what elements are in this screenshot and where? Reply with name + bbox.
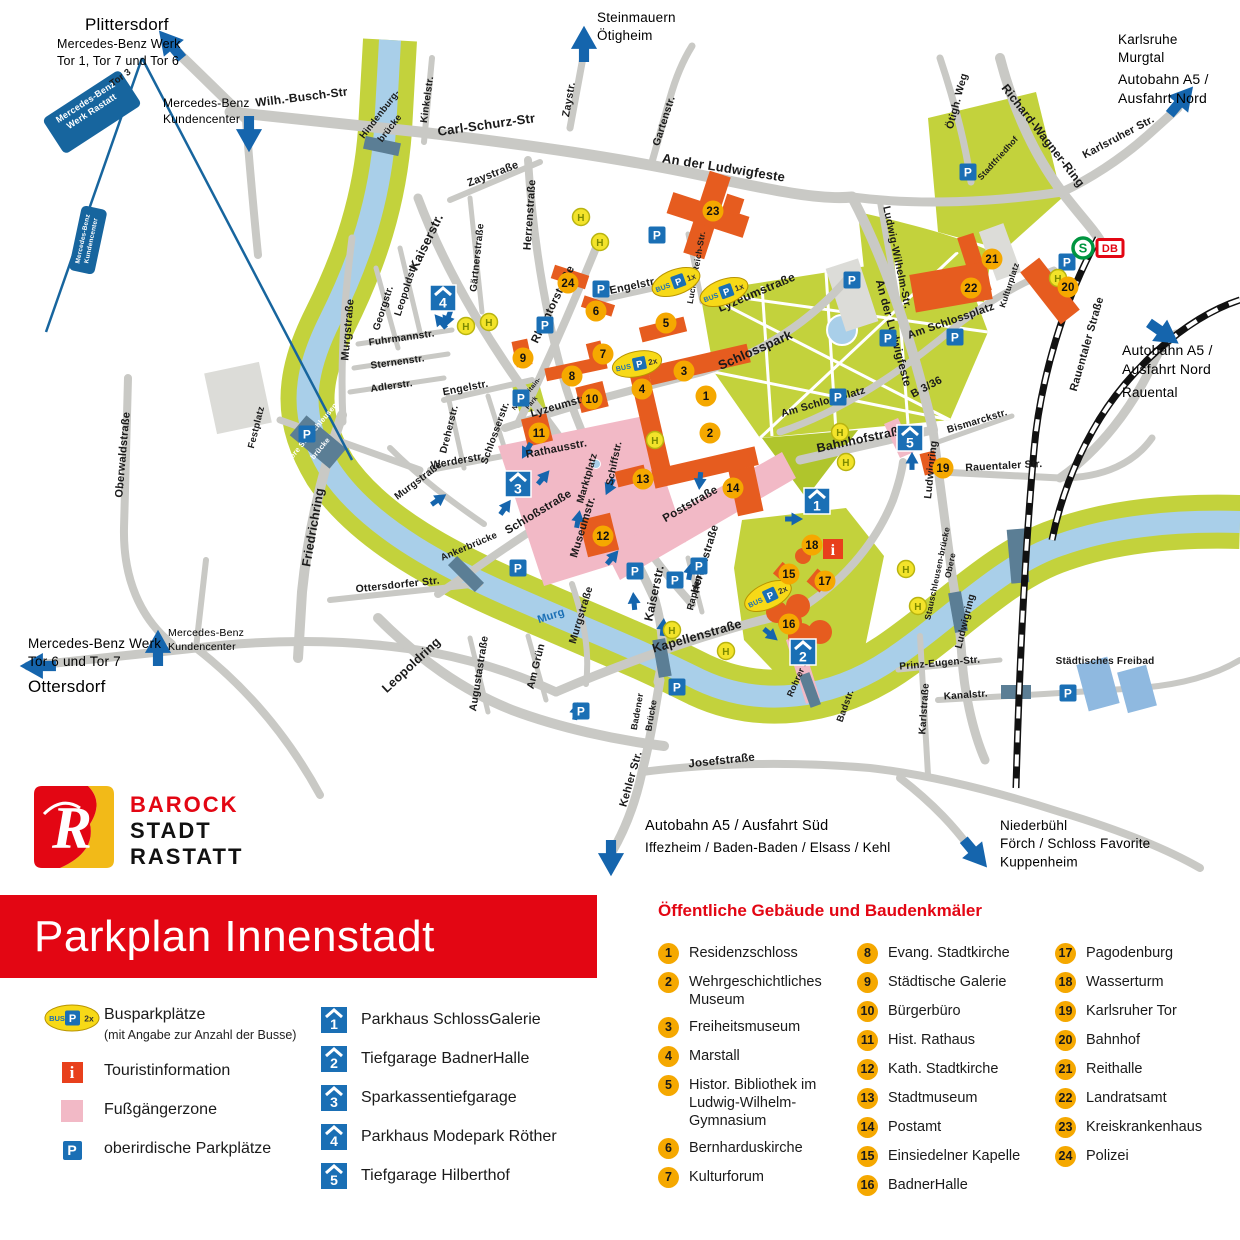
svg-text:P: P: [597, 283, 605, 297]
svg-text:H: H: [462, 322, 469, 333]
svg-text:Wilh.-Busch-Str: Wilh.-Busch-Str: [255, 84, 349, 109]
poi-list-item-15: 15Einsiedelner Kapelle: [857, 1146, 1055, 1167]
bus-stop-icon: H: [592, 234, 609, 251]
svg-text:Kundencenter: Kundencenter: [163, 112, 240, 126]
parking-icon: P: [1060, 685, 1077, 702]
parkhaus-label: Sparkassentiefgarage: [361, 1089, 517, 1107]
poi-number-badge: 15: [857, 1146, 878, 1167]
svg-text:P: P: [884, 332, 892, 346]
svg-text:1: 1: [813, 498, 821, 514]
poi-list-item-21: 21Reithalle: [1055, 1059, 1228, 1080]
svg-text:Steinmauern: Steinmauern: [597, 10, 676, 25]
svg-text:Plittersdorf: Plittersdorf: [85, 15, 169, 34]
parkhaus-label: Parkhaus SchlossGalerie: [361, 1011, 541, 1029]
svg-text:H: H: [902, 565, 909, 576]
bus-stop-icon: H: [458, 318, 475, 335]
svg-text:P: P: [1064, 687, 1072, 701]
parking-icon: P: [1059, 254, 1076, 271]
poi-marker-8: 8: [562, 366, 583, 387]
poi-marker-10: 10: [582, 389, 603, 410]
poi-list-item-18: 18Wasserturm: [1055, 972, 1228, 993]
svg-text:Mercedes-Benz: Mercedes-Benz: [168, 627, 244, 639]
poi-number-badge: 7: [658, 1167, 679, 1188]
svg-text:2x: 2x: [84, 1014, 94, 1024]
svg-text:P: P: [673, 681, 681, 695]
svg-text:P: P: [653, 229, 661, 243]
svg-text:P: P: [577, 705, 585, 719]
poi-number-badge: 22: [1055, 1088, 1076, 1109]
parking-icon: P: [510, 560, 527, 577]
bus-stop-icon: H: [910, 598, 927, 615]
poi-marker-3: 3: [674, 361, 695, 382]
poi-label: Städtische Galerie: [888, 972, 1006, 991]
poi-number-badge: 9: [857, 972, 878, 993]
svg-text:H: H: [842, 458, 849, 469]
svg-text:3: 3: [681, 366, 688, 378]
svg-text:Carl-Schurz-Str: Carl-Schurz-Str: [437, 110, 536, 139]
svg-text:8: 8: [569, 371, 576, 383]
svg-text:16: 16: [782, 619, 795, 631]
poi-marker-5: 5: [656, 313, 677, 334]
svg-text:10: 10: [585, 394, 598, 406]
svg-text:H: H: [668, 626, 675, 637]
legend-label: oberirdische Parkplätze: [104, 1139, 271, 1159]
poi-label: Pagodenburg: [1086, 943, 1173, 962]
poi-label: Landratsamt: [1086, 1088, 1167, 1107]
bus-stop-icon: H: [838, 454, 855, 471]
legend-item-pink-square: Fußgängerzone: [40, 1099, 320, 1123]
svg-text:P: P: [303, 428, 311, 442]
poi-number-badge: 16: [857, 1175, 878, 1196]
svg-text:H: H: [722, 647, 729, 658]
bus-stop-icon: H: [898, 561, 915, 578]
svg-text:Rauental: Rauental: [1122, 385, 1178, 400]
svg-text:2: 2: [707, 428, 714, 440]
svg-text:Autobahn A5 / Ausfahrt Süd: Autobahn A5 / Ausfahrt Süd: [645, 818, 828, 834]
parking-icon: P: [649, 227, 666, 244]
poi-label: Bahnhof: [1086, 1030, 1140, 1049]
poi-list-item-7: 7Kulturforum: [658, 1167, 857, 1188]
public-buildings-section: Öffentliche Gebäude und Baudenkmäler 1Re…: [658, 901, 1228, 1204]
svg-text:i: i: [831, 542, 836, 559]
poi-marker-24: 24: [558, 273, 579, 294]
svg-text:24: 24: [561, 278, 575, 290]
svg-text:BUS: BUS: [49, 1014, 65, 1023]
svg-text:P: P: [541, 319, 549, 333]
legend-item-p-square: Poberirdische Parkplätze: [40, 1138, 320, 1162]
poi-list-item-5: 5Histor. Bibliothek im Ludwig-Wilhelm-Gy…: [658, 1075, 857, 1130]
poi-columns: 1Residenzschloss2Wehrgeschichtliches Mus…: [658, 943, 1228, 1204]
poi-list-item-22: 22Landratsamt: [1055, 1088, 1228, 1109]
poi-marker-15: 15: [779, 564, 800, 585]
svg-text:4: 4: [639, 384, 646, 396]
city-logo: R BAROCK STADT RASTATT: [34, 786, 243, 870]
info-square: i: [40, 1060, 104, 1084]
svg-text:2: 2: [799, 649, 807, 665]
poi-label: Postamt: [888, 1117, 941, 1136]
bus-stop-icon: H: [664, 622, 681, 639]
poi-number-badge: 23: [1055, 1117, 1076, 1138]
parkhaus-list-item-5: 5Tiefgarage Hilberthof: [320, 1162, 580, 1190]
svg-text:2: 2: [330, 1055, 338, 1071]
poi-marker-6: 6: [586, 301, 607, 322]
parkhaus-icon: 3: [320, 1084, 348, 1112]
svg-text:Karlstraße: Karlstraße: [917, 683, 932, 735]
poi-list-item-9: 9Städtische Galerie: [857, 972, 1055, 993]
poi-label: Karlsruher Tor: [1086, 1001, 1177, 1020]
poi-marker-1: 1: [696, 386, 717, 407]
svg-text:Kinkelstr.: Kinkelstr.: [419, 76, 436, 124]
parking-icon: P: [960, 164, 977, 181]
page-title: Parkplan Innenstadt: [34, 912, 435, 962]
poi-marker-13: 13: [633, 469, 654, 490]
svg-text:P: P: [517, 392, 525, 406]
svg-text:19: 19: [936, 463, 949, 475]
map-legend: BUSP2xBusparkplätze(mit Angabe zur Anzah…: [40, 1004, 320, 1177]
poi-list-item-17: 17Pagodenburg: [1055, 943, 1228, 964]
poi-marker-20: 20: [1058, 277, 1079, 298]
svg-text:Tor 1, Tor 7 und Tor 6: Tor 1, Tor 7 und Tor 6: [57, 54, 179, 68]
poi-list-item-3: 3Freiheitsmuseum: [658, 1017, 857, 1038]
tourist-info-icon: i: [823, 539, 843, 559]
svg-text:22: 22: [964, 283, 977, 295]
svg-text:P: P: [69, 1013, 76, 1025]
svg-text:1: 1: [703, 391, 710, 403]
parking-icon: P: [299, 426, 316, 443]
bus-stop-icon: H: [647, 432, 664, 449]
poi-label: Evang. Stadtkirche: [888, 943, 1010, 962]
poi-label: Einsiedelner Kapelle: [888, 1146, 1020, 1165]
poi-label: Freiheitsmuseum: [689, 1017, 800, 1036]
svg-text:7: 7: [600, 349, 607, 361]
poi-column-1: 1Residenzschloss2Wehrgeschichtliches Mus…: [658, 943, 857, 1204]
parkhaus-marker-1: 1: [804, 488, 830, 514]
poi-marker-11: 11: [529, 423, 550, 444]
poi-marker-14: 14: [723, 478, 744, 499]
svg-text:17: 17: [818, 576, 831, 588]
poi-marker-12: 12: [593, 526, 614, 547]
bus-stop-icon: H: [832, 424, 849, 441]
svg-text:Gärtnerstraße: Gärtnerstraße: [468, 223, 486, 293]
poi-marker-18: 18: [802, 535, 823, 556]
svg-text:Niederbühl: Niederbühl: [1000, 818, 1067, 833]
city-map-svg: Mercedes-BenzWerk RastattMercedes-BenzKu…: [0, 0, 1240, 885]
svg-text:Tor 6 und Tor 7: Tor 6 und Tor 7: [28, 654, 121, 669]
parkhaus-marker-4: 4: [430, 285, 456, 311]
s-bahn-icon: S: [1073, 238, 1093, 258]
svg-text:Mercedes-Benz Werk: Mercedes-Benz Werk: [28, 636, 161, 651]
city-map: Mercedes-BenzWerk RastattMercedes-BenzKu…: [0, 0, 1240, 885]
poi-marker-21: 21: [982, 249, 1003, 270]
svg-text:Ausfahrt Nord: Ausfahrt Nord: [1118, 90, 1207, 106]
poi-number-badge: 13: [857, 1088, 878, 1109]
svg-text:DB: DB: [1102, 243, 1118, 255]
svg-text:Gartenstr.: Gartenstr.: [650, 95, 677, 148]
parkhaus-list-item-1: 1Parkhaus SchlossGalerie: [320, 1006, 580, 1034]
mercedes-box: Mercedes-BenzWerk Rastatt: [42, 69, 142, 154]
poi-list-item-16: 16BadnerHalle: [857, 1175, 1055, 1196]
svg-text:P: P: [848, 274, 856, 288]
poi-number-badge: 17: [1055, 943, 1076, 964]
poi-marker-7: 7: [593, 344, 614, 365]
svg-text:Badener: Badener: [629, 692, 645, 731]
poi-list-item-19: 19Karlsruher Tor: [1055, 1001, 1228, 1022]
svg-text:3: 3: [330, 1094, 338, 1110]
legend-label: Fußgängerzone: [104, 1100, 217, 1120]
svg-text:5: 5: [663, 318, 670, 330]
parking-icon: P: [573, 703, 590, 720]
svg-text:P: P: [964, 166, 972, 180]
logo-line2: STADT: [130, 818, 243, 844]
parkhaus-list-item-2: 2Tiefgarage BadnerHalle: [320, 1045, 580, 1073]
svg-text:S: S: [1079, 241, 1088, 256]
poi-label: Bernharduskirche: [689, 1138, 803, 1157]
svg-text:Autobahn A5 /: Autobahn A5 /: [1122, 342, 1213, 358]
svg-text:Karlsruhe: Karlsruhe: [1118, 32, 1178, 47]
parking-icon: P: [667, 572, 684, 589]
poi-column-2: 8Evang. Stadtkirche9Städtische Galerie10…: [857, 943, 1055, 1204]
svg-text:11: 11: [533, 428, 546, 440]
poi-number-badge: 24: [1055, 1146, 1076, 1167]
poi-label: Bürgerbüro: [888, 1001, 961, 1020]
poi-label: BadnerHalle: [888, 1175, 968, 1194]
poi-number-badge: 5: [658, 1075, 679, 1096]
poi-marker-16: 16: [779, 614, 800, 635]
legend-item-bus-oval: BUSP2xBusparkplätze(mit Angabe zur Anzah…: [40, 1004, 320, 1045]
svg-text:H: H: [577, 213, 584, 224]
svg-text:Ausfahrt Nord: Ausfahrt Nord: [1122, 361, 1211, 377]
parkhaus-icon: 2: [320, 1045, 348, 1073]
svg-text:Kuppenheim: Kuppenheim: [1000, 854, 1078, 869]
svg-text:P: P: [695, 560, 703, 574]
parkhaus-list: 1Parkhaus SchlossGalerie2Tiefgarage Badn…: [320, 1006, 580, 1201]
poi-label: Wasserturm: [1086, 972, 1164, 991]
poi-number-badge: 19: [1055, 1001, 1076, 1022]
parkhaus-icon: 4: [320, 1123, 348, 1151]
poi-label: Wehrgeschichtliches Museum: [689, 972, 857, 1009]
poi-number-badge: 8: [857, 943, 878, 964]
poi-list-item-2: 2Wehrgeschichtliches Museum: [658, 972, 857, 1009]
svg-text:Mercedes-Benz: Mercedes-Benz: [163, 96, 250, 110]
svg-text:1: 1: [330, 1016, 338, 1032]
svg-text:9: 9: [520, 353, 527, 365]
parkhaus-label: Parkhaus Modepark Röther: [361, 1128, 557, 1146]
poi-list-item-10: 10Bürgerbüro: [857, 1001, 1055, 1022]
poi-label: Polizei: [1086, 1146, 1129, 1165]
logo-line3: RASTATT: [130, 844, 243, 870]
parking-icon: P: [593, 281, 610, 298]
poi-list-item-8: 8Evang. Stadtkirche: [857, 943, 1055, 964]
svg-text:Städtisches Freibad: Städtisches Freibad: [1056, 656, 1155, 667]
poi-marker-17: 17: [815, 571, 836, 592]
poi-label: Marstall: [689, 1046, 740, 1065]
poi-list-item-23: 23Kreiskrankenhaus: [1055, 1117, 1228, 1138]
parkhaus-marker-5: 5: [897, 425, 923, 451]
legend-sublabel: (mit Angabe zur Anzahl der Busse): [104, 1025, 296, 1045]
poi-number-badge: 2: [658, 972, 679, 993]
svg-text:Murgtal: Murgtal: [1118, 50, 1164, 65]
svg-text:6: 6: [593, 306, 600, 318]
svg-text:Förch / Schloss Favorite: Förch / Schloss Favorite: [1000, 836, 1150, 851]
pink-square: [40, 1099, 104, 1123]
svg-text:4: 4: [330, 1133, 338, 1149]
svg-text:P: P: [631, 565, 639, 579]
parking-icon: P: [513, 390, 530, 407]
svg-text:Autobahn A5 /: Autobahn A5 /: [1118, 71, 1209, 87]
svg-text:H: H: [485, 318, 492, 329]
parkhaus-list-item-4: 4Parkhaus Modepark Röther: [320, 1123, 580, 1151]
poi-marker-2: 2: [700, 423, 721, 444]
poi-list-item-20: 20Bahnhof: [1055, 1030, 1228, 1051]
poi-marker-19: 19: [933, 458, 954, 479]
mercedes-box: Mercedes-BenzKundencenter: [68, 205, 107, 275]
poi-number-badge: 6: [658, 1138, 679, 1159]
svg-text:15: 15: [782, 569, 796, 581]
bus-oval: BUSP2x: [40, 1004, 104, 1032]
svg-text:13: 13: [636, 474, 649, 486]
poi-list-item-12: 12Kath. Stadtkirche: [857, 1059, 1055, 1080]
poi-number-badge: 4: [658, 1046, 679, 1067]
poi-list-item-14: 14Postamt: [857, 1117, 1055, 1138]
svg-text:Iffezheim / Baden-Baden / Elsa: Iffezheim / Baden-Baden / Elsass / Kehl: [645, 840, 890, 855]
poi-marker-23: 23: [703, 201, 724, 222]
poi-label: Residenzschloss: [689, 943, 798, 962]
poi-number-badge: 10: [857, 1001, 878, 1022]
bus-stop-icon: H: [481, 314, 498, 331]
parkhaus-list-item-3: 3Sparkassentiefgarage: [320, 1084, 580, 1112]
poi-number-badge: 14: [857, 1117, 878, 1138]
poi-list-item-11: 11Hist. Rathaus: [857, 1030, 1055, 1051]
svg-text:18: 18: [805, 540, 819, 552]
poi-marker-4: 4: [632, 379, 653, 400]
poi-label: Hist. Rathaus: [888, 1030, 975, 1049]
parkhaus-marker-2: 2: [790, 639, 816, 665]
parkhaus-icon: 1: [320, 1006, 348, 1034]
svg-text:20: 20: [1061, 282, 1074, 294]
poi-list-item-4: 4Marstall: [658, 1046, 857, 1067]
svg-text:5: 5: [330, 1172, 338, 1188]
svg-text:Ötigheim: Ötigheim: [597, 28, 653, 43]
parkhaus-icon: 5: [320, 1162, 348, 1190]
poi-label: Histor. Bibliothek im Ludwig-Wilhelm-Gym…: [689, 1075, 857, 1130]
poi-list-item-6: 6Bernharduskirche: [658, 1138, 857, 1159]
svg-text:P: P: [514, 562, 522, 576]
parking-icon: P: [830, 389, 847, 406]
svg-text:23: 23: [706, 206, 719, 218]
poi-label: Kath. Stadtkirche: [888, 1059, 998, 1078]
poi-column-3: 17Pagodenburg18Wasserturm19Karlsruher To…: [1055, 943, 1228, 1204]
parkhaus-marker-3: 3: [505, 471, 531, 497]
bus-stop-icon: H: [718, 643, 735, 660]
poi-number-badge: 3: [658, 1017, 679, 1038]
db-icon: DB: [1097, 240, 1123, 257]
poi-number-badge: 11: [857, 1030, 878, 1051]
svg-text:P: P: [951, 331, 959, 345]
svg-text:Sternenstr.: Sternenstr.: [370, 353, 425, 371]
svg-text:H: H: [651, 436, 658, 447]
legend-item-info-square: iTouristinformation: [40, 1060, 320, 1084]
svg-text:3: 3: [514, 481, 522, 497]
poi-label: Kulturforum: [689, 1167, 764, 1186]
poi-list-item-1: 1Residenzschloss: [658, 943, 857, 964]
legend-label: Touristinformation: [104, 1061, 230, 1081]
svg-text:P: P: [834, 391, 842, 405]
svg-text:Kundencenter: Kundencenter: [168, 641, 236, 653]
svg-text:H: H: [836, 428, 843, 439]
parking-icon: P: [947, 329, 964, 346]
svg-text:Adlerstr.: Adlerstr.: [370, 378, 414, 395]
poi-label: Stadtmuseum: [888, 1088, 977, 1107]
parking-icon: P: [880, 330, 897, 347]
parkhaus-label: Tiefgarage BadnerHalle: [361, 1050, 529, 1068]
svg-text:4: 4: [439, 295, 447, 311]
svg-text:Friedrichring: Friedrichring: [299, 487, 327, 568]
svg-text:Mercedes-Benz Werk: Mercedes-Benz Werk: [57, 37, 181, 51]
poi-marker-9: 9: [513, 348, 534, 369]
title-banner: Parkplan Innenstadt: [0, 895, 597, 978]
rastatt-emblem-icon: R: [34, 786, 114, 868]
svg-text:12: 12: [596, 531, 609, 543]
svg-text:Ottersdorf: Ottersdorf: [28, 677, 106, 696]
parking-icon: P: [627, 563, 644, 580]
logo-line1: BAROCK: [130, 792, 243, 818]
poi-number-badge: 1: [658, 943, 679, 964]
poi-number-badge: 12: [857, 1059, 878, 1080]
poi-label: Reithalle: [1086, 1059, 1142, 1078]
poi-list-item-24: 24Polizei: [1055, 1146, 1228, 1167]
poi-label: Kreiskrankenhaus: [1086, 1117, 1202, 1136]
parkhaus-label: Tiefgarage Hilberthof: [361, 1167, 510, 1185]
poi-number-badge: 18: [1055, 972, 1076, 993]
parking-icon: P: [844, 272, 861, 289]
poi-number-badge: 20: [1055, 1030, 1076, 1051]
svg-text:P: P: [1063, 256, 1071, 270]
parking-icon: P: [669, 679, 686, 696]
svg-text:21: 21: [985, 254, 999, 266]
svg-text:H: H: [596, 238, 603, 249]
poi-heading: Öffentliche Gebäude und Baudenkmäler: [658, 901, 1228, 921]
poi-number-badge: 21: [1055, 1059, 1076, 1080]
parking-icon: P: [691, 558, 708, 575]
parking-icon: P: [537, 317, 554, 334]
poi-list-item-13: 13Stadtmuseum: [857, 1088, 1055, 1109]
svg-text:H: H: [914, 602, 921, 613]
legend-label: Busparkplätze: [104, 1005, 296, 1025]
p-square: P: [40, 1138, 104, 1162]
svg-text:14: 14: [726, 483, 740, 495]
svg-text:P: P: [671, 574, 679, 588]
svg-text:5: 5: [906, 435, 914, 451]
bus-stop-icon: H: [573, 209, 590, 226]
poi-marker-22: 22: [961, 278, 982, 299]
